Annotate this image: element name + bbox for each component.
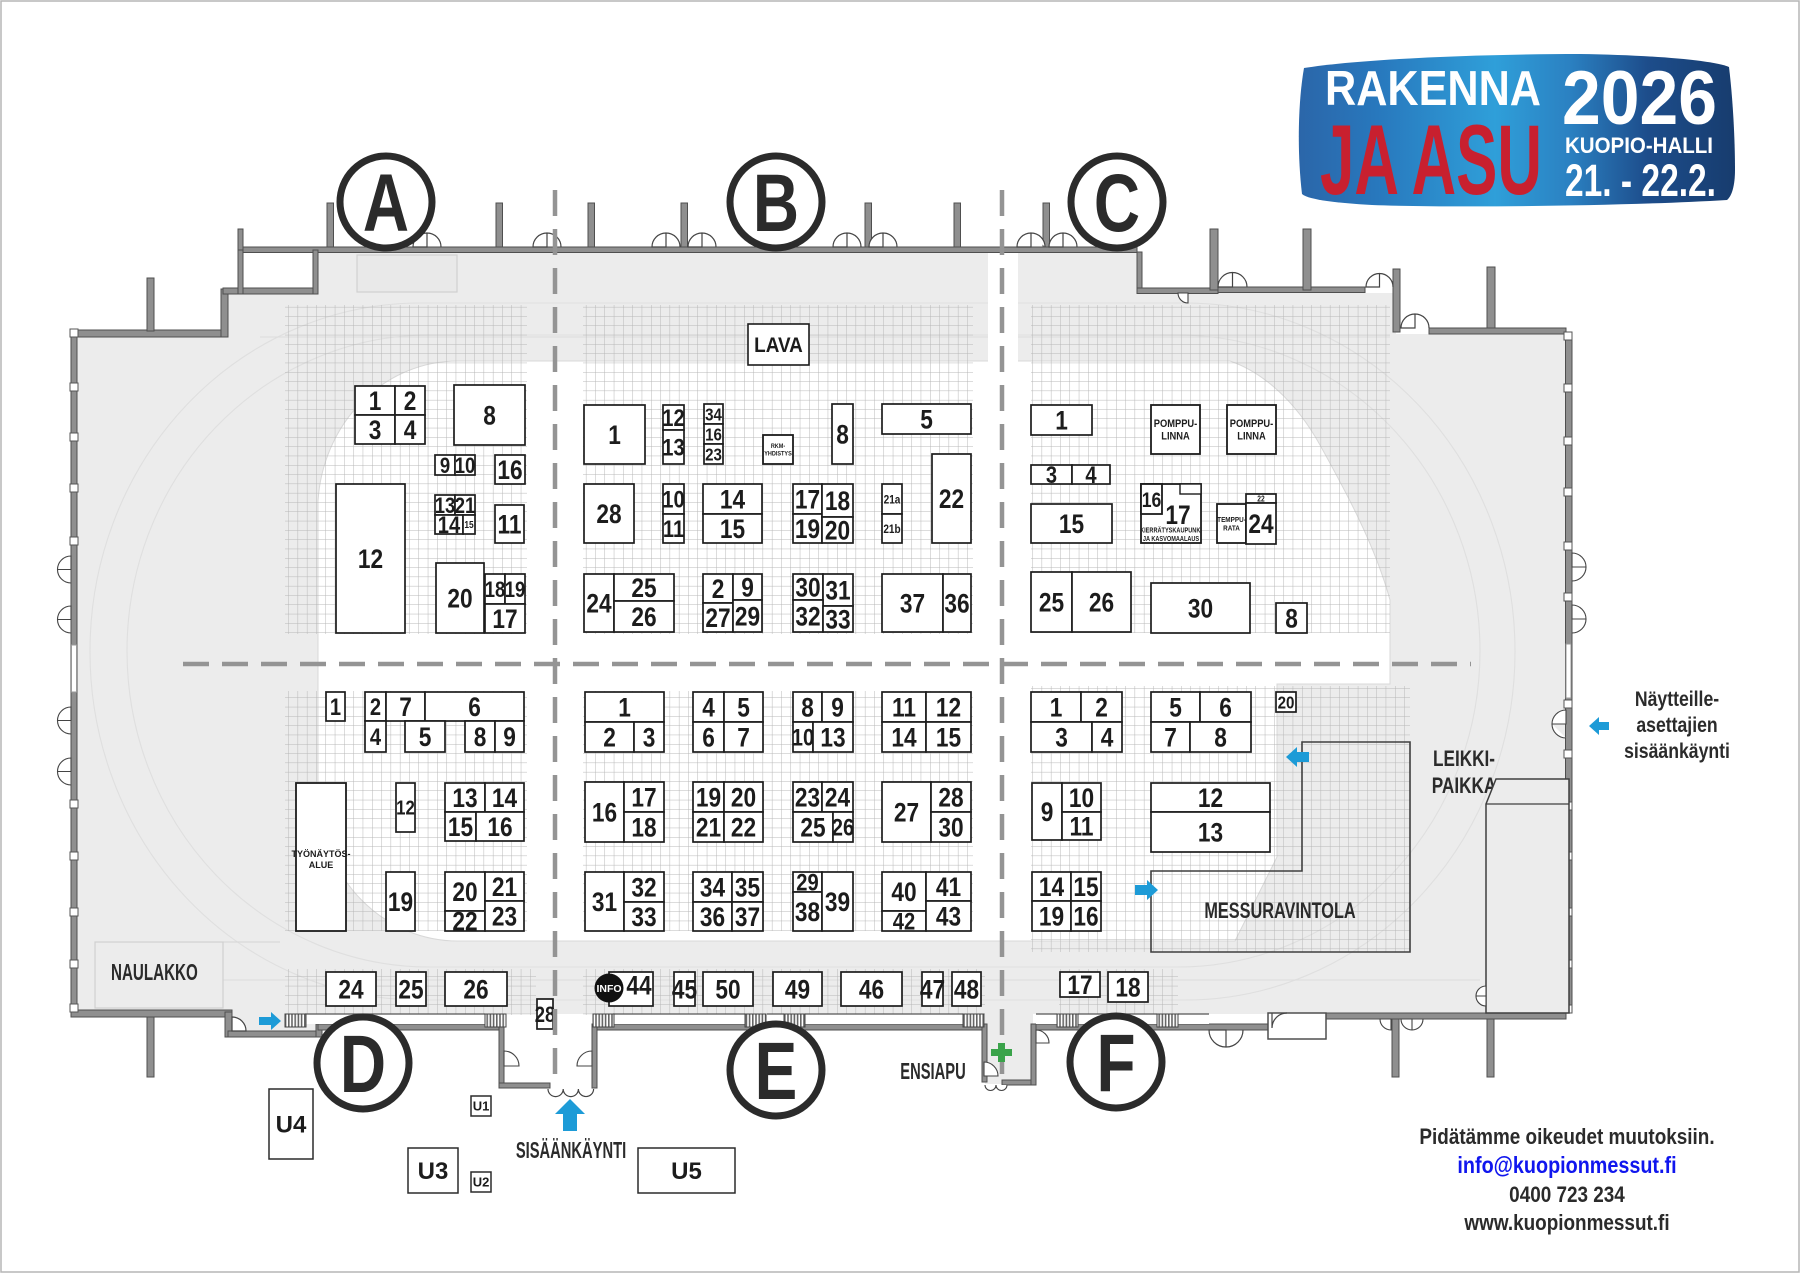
svg-text:asettajien: asettajien [1636,714,1717,738]
svg-text:INFO: INFO [596,983,621,995]
svg-text:KIERRÄTYSKAUPUNKI: KIERRÄTYSKAUPUNKI [1140,526,1202,535]
svg-text:5: 5 [419,722,432,752]
svg-text:8: 8 [1214,723,1227,753]
svg-text:16: 16 [487,812,512,842]
svg-text:3: 3 [643,723,656,753]
svg-text:37: 37 [900,589,925,619]
svg-text:44: 44 [626,971,651,1001]
svg-text:21b: 21b [883,523,901,536]
svg-text:1: 1 [1055,406,1068,436]
svg-text:C: C [1094,156,1140,249]
svg-text:39: 39 [825,887,850,917]
svg-text:33: 33 [631,902,656,932]
svg-text:D: D [340,1017,386,1110]
svg-text:24: 24 [338,975,363,1005]
svg-text:16: 16 [592,798,617,828]
svg-text:E: E [755,1024,798,1117]
svg-text:9: 9 [831,693,844,723]
svg-text:37: 37 [735,902,760,932]
svg-text:U2: U2 [473,1175,490,1190]
svg-text:25: 25 [398,975,423,1005]
svg-text:17: 17 [795,485,820,515]
svg-text:18: 18 [1115,973,1140,1003]
svg-text:20: 20 [447,584,472,614]
svg-text:1: 1 [618,693,631,723]
svg-text:16: 16 [705,424,722,445]
svg-text:48: 48 [954,975,979,1005]
svg-text:24: 24 [1248,509,1273,539]
svg-text:23: 23 [492,902,517,932]
svg-text:18: 18 [485,578,506,602]
svg-text:3: 3 [369,415,382,445]
svg-text:MESSURAVINTOLA: MESSURAVINTOLA [1204,899,1355,924]
svg-text:1: 1 [369,386,382,416]
svg-text:U4: U4 [276,1111,307,1138]
svg-text:B: B [753,156,799,249]
svg-text:12: 12 [358,544,383,574]
svg-text:14: 14 [438,511,461,538]
svg-text:4: 4 [1101,723,1114,753]
svg-text:LINNA: LINNA [1161,431,1190,443]
svg-text:2: 2 [712,574,725,604]
svg-text:36: 36 [944,589,969,619]
svg-text:16: 16 [1142,489,1162,513]
svg-text:43: 43 [936,902,961,932]
svg-text:46: 46 [859,975,884,1005]
svg-text:9: 9 [1041,797,1054,827]
svg-text:14: 14 [1039,872,1064,902]
svg-text:36: 36 [700,902,725,932]
svg-text:JA ASU: JA ASU [1320,104,1542,215]
svg-text:31: 31 [825,576,850,606]
svg-text:LAVA: LAVA [754,334,803,357]
svg-text:25: 25 [631,573,656,603]
svg-text:6: 6 [1219,693,1232,723]
svg-text:25: 25 [800,813,825,843]
svg-text:RKM-: RKM- [771,444,785,450]
svg-text:42: 42 [893,908,915,935]
svg-text:30: 30 [795,573,820,603]
svg-text:28: 28 [596,499,621,529]
svg-text:6: 6 [702,723,715,753]
svg-text:1: 1 [1050,693,1063,723]
svg-text:19: 19 [1039,902,1064,932]
svg-text:26: 26 [631,602,656,632]
svg-text:20: 20 [1278,692,1295,713]
svg-text:12: 12 [1198,783,1223,813]
svg-text:19: 19 [696,783,721,813]
svg-text:26: 26 [1089,588,1114,618]
svg-text:13: 13 [452,783,477,813]
svg-text:11: 11 [892,693,916,723]
svg-text:sisäänkäynti: sisäänkäynti [1624,740,1730,764]
svg-text:38: 38 [795,897,820,927]
svg-text:12: 12 [936,693,961,723]
svg-text:32: 32 [795,602,820,632]
svg-text:15: 15 [1059,509,1084,539]
svg-text:4: 4 [370,723,382,750]
svg-text:NAULAKKO: NAULAKKO [111,960,198,986]
svg-text:15: 15 [448,812,473,842]
svg-text:8: 8 [801,693,814,723]
svg-text:15: 15 [464,519,473,530]
svg-text:7: 7 [737,723,750,753]
svg-text:29: 29 [735,602,760,632]
svg-text:U3: U3 [418,1158,449,1185]
svg-text:9: 9 [503,722,516,752]
svg-text:9: 9 [440,454,450,478]
svg-text:3: 3 [1055,723,1068,753]
svg-text:12: 12 [662,404,684,431]
svg-text:2: 2 [404,386,417,416]
svg-text:TYÖNÄYTÖS-: TYÖNÄYTÖS- [291,849,350,859]
svg-text:www.kuopionmessut.fi: www.kuopionmessut.fi [1463,1211,1669,1236]
svg-text:32: 32 [631,873,656,903]
svg-text:28: 28 [938,783,963,813]
svg-text:ALUE: ALUE [309,860,334,870]
svg-text:SISÄÄNKÄYNTI: SISÄÄNKÄYNTI [516,1137,626,1164]
svg-text:26: 26 [832,814,854,841]
svg-text:17: 17 [631,783,656,813]
svg-text:14: 14 [891,723,916,753]
svg-text:22: 22 [452,907,477,937]
svg-text:8: 8 [483,401,496,431]
svg-text:26: 26 [463,975,488,1005]
svg-text:13: 13 [820,723,845,753]
svg-text:24: 24 [825,783,850,813]
svg-text:19: 19 [388,887,413,917]
svg-text:22: 22 [731,813,756,843]
svg-text:2026: 2026 [1562,56,1717,141]
svg-text:JA KASVOMAALAUS: JA KASVOMAALAUS [1143,535,1199,543]
svg-text:8: 8 [836,420,849,450]
svg-text:10: 10 [455,454,476,478]
svg-text:U1: U1 [473,1099,490,1114]
svg-text:A: A [363,156,409,249]
svg-text:7: 7 [399,692,412,722]
svg-text:6: 6 [468,692,481,722]
svg-text:5: 5 [920,405,933,435]
svg-text:31: 31 [592,887,617,917]
svg-text:13: 13 [1198,818,1223,848]
svg-text:RATA: RATA [1223,525,1240,533]
svg-text:15: 15 [936,723,961,753]
svg-text:14: 14 [720,485,745,515]
svg-text:1: 1 [608,420,621,450]
svg-text:14: 14 [492,783,517,813]
svg-text:21. - 22.2.: 21. - 22.2. [1565,155,1716,206]
svg-text:47: 47 [920,975,945,1005]
svg-text:50: 50 [715,975,740,1005]
svg-text:40: 40 [891,877,916,907]
svg-text:ENSIAPU: ENSIAPU [900,1060,965,1085]
svg-text:27: 27 [705,603,730,633]
svg-text:Pidätämme oikeudet muutoksiin.: Pidätämme oikeudet muutoksiin. [1419,1125,1714,1150]
svg-text:24: 24 [586,589,611,619]
svg-text:0400 723 234: 0400 723 234 [1509,1183,1625,1208]
svg-text:11: 11 [1070,812,1094,842]
svg-text:27: 27 [894,798,919,828]
svg-text:7: 7 [1164,723,1177,753]
svg-text:18: 18 [825,486,850,516]
svg-text:8: 8 [1285,604,1298,634]
svg-text:23: 23 [795,783,820,813]
svg-text:45: 45 [672,975,697,1005]
svg-text:35: 35 [735,873,760,903]
svg-text:3: 3 [1046,461,1057,488]
svg-text:20: 20 [825,516,850,546]
svg-text:30: 30 [938,813,963,843]
svg-text:30: 30 [1188,594,1213,624]
svg-text:33: 33 [825,605,850,635]
svg-text:10: 10 [1069,783,1094,813]
svg-text:Näytteille-: Näytteille- [1635,688,1719,712]
svg-text:info@kuopionmessut.fi: info@kuopionmessut.fi [1457,1153,1676,1179]
svg-text:YHDISTYS: YHDISTYS [764,451,792,457]
svg-text:4: 4 [702,693,715,723]
svg-text:POMPPU-: POMPPU- [1230,419,1274,431]
svg-text:1: 1 [330,693,341,720]
svg-text:8: 8 [474,722,487,752]
svg-text:19: 19 [795,514,820,544]
svg-text:11: 11 [663,515,684,542]
svg-text:17: 17 [1165,500,1190,530]
svg-text:TEMPPU-: TEMPPU- [1217,517,1246,525]
svg-text:2: 2 [1095,693,1108,723]
svg-text:22: 22 [1257,494,1264,504]
svg-text:16: 16 [1073,902,1098,932]
svg-text:4: 4 [1085,461,1097,488]
svg-text:15: 15 [1073,872,1098,902]
svg-text:20: 20 [731,783,756,813]
svg-text:2: 2 [370,693,381,720]
svg-text:F: F [1096,1016,1135,1109]
svg-text:17: 17 [492,604,517,634]
svg-text:41: 41 [936,872,961,902]
svg-text:49: 49 [785,975,810,1005]
svg-text:21: 21 [696,813,721,843]
svg-text:12: 12 [396,796,415,819]
svg-text:5: 5 [1169,693,1182,723]
svg-text:LEIKKI-: LEIKKI- [1433,747,1495,772]
svg-text:2: 2 [603,723,616,753]
svg-text:5: 5 [737,693,750,723]
svg-text:10: 10 [792,724,814,751]
svg-text:23: 23 [705,444,722,465]
svg-text:21: 21 [492,872,517,902]
svg-text:U5: U5 [671,1158,702,1185]
svg-text:34: 34 [700,873,725,903]
svg-text:18: 18 [631,813,656,843]
svg-text:4: 4 [404,415,417,445]
svg-text:16: 16 [497,455,522,485]
svg-text:LINNA: LINNA [1237,431,1266,443]
svg-text:9: 9 [741,573,754,603]
svg-text:28: 28 [535,1003,556,1027]
svg-text:POMPPU-: POMPPU- [1154,419,1198,431]
svg-text:22: 22 [939,484,964,514]
svg-text:25: 25 [1039,588,1064,618]
svg-text:PAIKKA: PAIKKA [1432,774,1496,799]
svg-text:17: 17 [1067,970,1092,1000]
svg-text:19: 19 [505,578,526,602]
svg-text:21a: 21a [884,494,902,507]
svg-text:11: 11 [498,510,522,540]
svg-text:15: 15 [720,514,745,544]
svg-text:10: 10 [662,486,684,513]
svg-text:13: 13 [662,434,684,461]
svg-text:34: 34 [705,404,722,425]
svg-text:20: 20 [452,877,477,907]
